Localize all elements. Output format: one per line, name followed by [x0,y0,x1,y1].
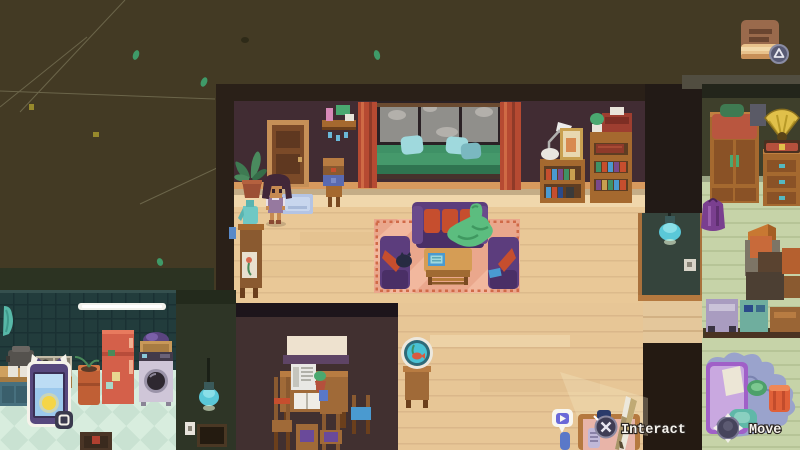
svg-text:Interact: Interact [621,423,686,438]
svg-text:Move: Move [749,423,781,438]
